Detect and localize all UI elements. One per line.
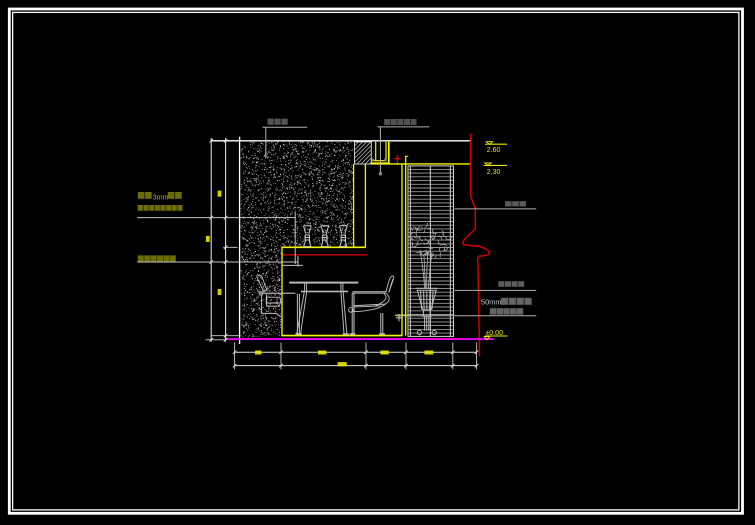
svg-text:50mm: 50mm — [481, 298, 502, 307]
svg-text:2.60: 2.60 — [487, 147, 501, 154]
svg-text:3mm: 3mm — [153, 194, 169, 201]
svg-text:±0.00: ±0.00 — [485, 328, 503, 337]
svg-text:2.30: 2.30 — [487, 169, 501, 176]
